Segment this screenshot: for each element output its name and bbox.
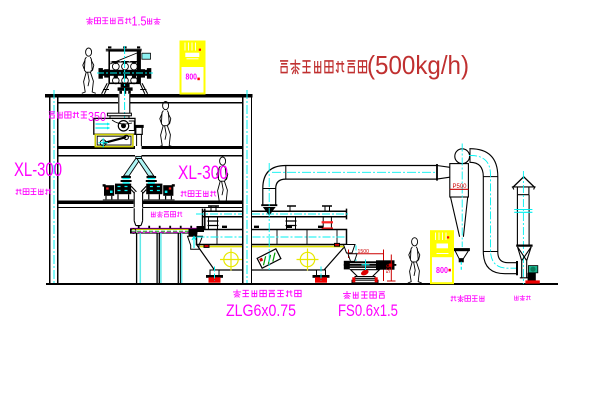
- svg-text:ZLG6x0.75: ZLG6x0.75: [226, 302, 296, 320]
- svg-text:800: 800: [436, 266, 448, 275]
- svg-text:XL-300: XL-300: [14, 160, 62, 181]
- svg-text:800: 800: [186, 72, 198, 81]
- svg-text:(500kg/h): (500kg/h): [367, 50, 469, 80]
- svg-text:1.5: 1.5: [132, 14, 147, 29]
- svg-text:FS0.6x1.5: FS0.6x1.5: [338, 302, 398, 320]
- svg-text:XL-300: XL-300: [178, 163, 228, 184]
- svg-text:500: 500: [386, 264, 392, 273]
- svg-text:350: 350: [88, 109, 106, 124]
- svg-text:P500: P500: [453, 184, 468, 190]
- svg-text:1500: 1500: [358, 249, 370, 255]
